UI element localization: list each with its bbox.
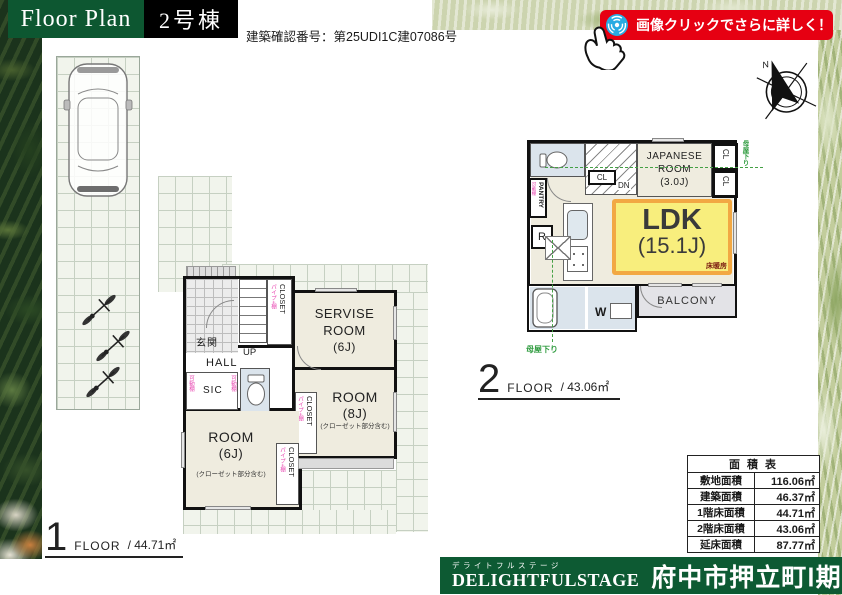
row-value: 44.71㎡ xyxy=(755,505,819,521)
toilet-icon xyxy=(243,373,271,413)
pipe-shelf-label: パイプ+棚 xyxy=(278,447,286,472)
window xyxy=(205,506,251,510)
row-value: 46.37㎡ xyxy=(755,489,819,505)
room8-size: (8J) xyxy=(316,406,394,423)
badge-label: 画像クリックでさらに詳しく！ xyxy=(636,15,832,35)
floor1-word: FLOOR xyxy=(74,539,120,553)
building-banner: 2号棟 xyxy=(144,0,238,38)
up-label: UP xyxy=(243,347,256,358)
sic-room: 可動棚 可動棚 SIC xyxy=(186,372,238,410)
row-label: 建築面積 xyxy=(688,489,755,504)
floor2-number: 2 xyxy=(478,364,500,395)
room8-label: ROOM (8J) (クローゼット部分含む) xyxy=(316,388,394,432)
closet-label: CLOSET xyxy=(305,396,314,426)
sic-label: SIC xyxy=(203,385,223,396)
image-click-badge[interactable]: 画像クリックでさらに詳しく！ xyxy=(600,10,833,40)
title-banner: Floor Plan xyxy=(8,0,144,38)
closet-label: CLOSET xyxy=(278,284,287,314)
floor2-caption: 2 FLOOR / 43.06㎡ xyxy=(478,364,620,400)
row-label: 2階床面積 xyxy=(688,521,755,536)
yard-grid xyxy=(296,470,396,510)
room6-label: ROOM (6J) (クローゼット部分含む) xyxy=(186,428,276,480)
table-row: 延床面積 87.77㎡ xyxy=(688,536,819,552)
room6-note: (クローゼット部分含む) xyxy=(186,471,276,479)
confirmation-number: 建築確認番号：第25UDI1C建07086号 xyxy=(246,26,457,45)
closet-label: CLOSET xyxy=(287,447,296,477)
row-label: 延床面積 xyxy=(688,537,755,552)
foliage-photo-left xyxy=(0,0,42,559)
pipe-shelf-label: パイプ+棚 xyxy=(269,284,277,309)
page-title: Floor Plan xyxy=(21,6,132,33)
ldk-label: LDK xyxy=(616,205,728,235)
cl-label: CL xyxy=(590,172,614,183)
table-row: 建築面積 46.37㎡ xyxy=(688,488,819,504)
floor-heating-label: 床暖房 xyxy=(706,261,727,271)
void-hatch xyxy=(545,236,571,260)
building-number: 2号棟 xyxy=(159,3,223,35)
floor2-area: / 43.06㎡ xyxy=(561,378,610,395)
f1-closet-stair: パイプ+棚 CLOSET xyxy=(267,279,292,345)
pantry: 可動棚 PANTRY xyxy=(529,178,547,218)
bathtub-icon xyxy=(532,288,558,328)
genkan-label: 玄関 xyxy=(196,334,218,349)
f2-closet-cl2: CL xyxy=(712,170,738,198)
window xyxy=(393,306,397,340)
floor2-word: FLOOR xyxy=(507,381,553,395)
moya-sagari-label: 母屋下り xyxy=(739,140,749,166)
car-topview-icon xyxy=(63,60,133,200)
washer-room: W xyxy=(588,287,635,329)
washer-pan-icon xyxy=(610,303,632,319)
japanese-room-size: (3.0J) xyxy=(638,176,711,189)
f1-stairs xyxy=(239,279,267,343)
hand-cursor-icon[interactable] xyxy=(578,24,630,70)
moya-sagari-label: 母屋下り xyxy=(526,344,558,355)
row-value: 116.06㎡ xyxy=(755,473,819,489)
toilet-icon xyxy=(539,147,573,173)
row-value: 87.77㎡ xyxy=(755,537,819,553)
f2-stair-closet: CL xyxy=(588,170,616,185)
service-room-name: SERVISE ROOM xyxy=(295,306,394,340)
bathroom xyxy=(530,287,585,329)
window xyxy=(393,392,397,432)
window xyxy=(692,283,722,287)
ldk-size: (15.1J) xyxy=(616,235,728,257)
cl-label: CL xyxy=(721,176,730,186)
moya-line xyxy=(552,240,553,342)
window xyxy=(733,212,737,254)
room6-closet: パイプ+棚 CLOSET xyxy=(276,443,299,505)
window xyxy=(181,432,185,468)
floor1-caption: 1 FLOOR / 44.71㎡ xyxy=(45,522,183,558)
room8-note: (クローゼット部分含む) xyxy=(316,423,394,431)
terrace-step xyxy=(298,458,394,469)
ldk-highlight: LDK (15.1J) 床暖房 xyxy=(612,199,732,275)
japanese-room-line1: JAPANESE xyxy=(638,150,711,163)
japanese-room-line2: ROOM xyxy=(638,163,711,176)
window xyxy=(315,288,357,292)
hall-label: HALL xyxy=(206,357,238,369)
moya-line xyxy=(545,167,763,168)
area-table: 面 積 表 敷地面積 116.06㎡ 建築面積 46.37㎡ 1階床面積 44.… xyxy=(687,455,820,553)
f2-toilet-room xyxy=(530,143,585,177)
movable-shelf-label: 可動棚 xyxy=(229,375,237,392)
project-name: 府中市押立町Ⅰ期 xyxy=(651,558,841,594)
yard-grid xyxy=(183,508,396,534)
japanese-room-label: JAPANESE ROOM (3.0J) xyxy=(638,150,711,189)
room6-size: (6J) xyxy=(186,446,276,463)
brand-banner: デライトフルステージ DELIGHTFULSTAGE 府中市押立町Ⅰ期 xyxy=(440,557,842,594)
room8-name: ROOM xyxy=(316,388,394,406)
window xyxy=(652,138,684,142)
japanese-room: JAPANESE ROOM (3.0J) xyxy=(637,143,712,197)
row-value: 43.06㎡ xyxy=(755,521,819,537)
brand-name: DELIGHTFULSTAGE xyxy=(452,571,639,589)
compass-north-label: N xyxy=(761,59,770,70)
table-row: 敷地面積 116.06㎡ xyxy=(688,472,819,488)
row-label: 敷地面積 xyxy=(688,473,755,488)
room6-name: ROOM xyxy=(186,428,276,446)
yard-grid xyxy=(396,292,428,532)
row-label: 1階床面積 xyxy=(688,505,755,520)
pantry-label: PANTRY xyxy=(537,182,544,208)
table-row: 2階床面積 43.06㎡ xyxy=(688,520,819,536)
brand-block: デライトフルステージ DELIGHTFULSTAGE xyxy=(452,562,639,588)
movable-shelf-label: 可動棚 xyxy=(187,375,195,392)
floor1-area: / 44.71㎡ xyxy=(128,536,177,553)
dn-label: DN xyxy=(617,181,631,190)
area-table-title: 面 積 表 xyxy=(688,456,819,472)
floor1-number: 1 xyxy=(45,522,67,553)
cl-label: CL xyxy=(721,149,730,159)
compass-icon: N xyxy=(748,56,824,122)
washer-label: W xyxy=(595,305,606,319)
floor-plan-flyer: Floor Plan 2号棟 建築確認番号：第25UDI1C建07086号 画像… xyxy=(0,0,842,595)
table-row: 1階床面積 44.71㎡ xyxy=(688,504,819,520)
